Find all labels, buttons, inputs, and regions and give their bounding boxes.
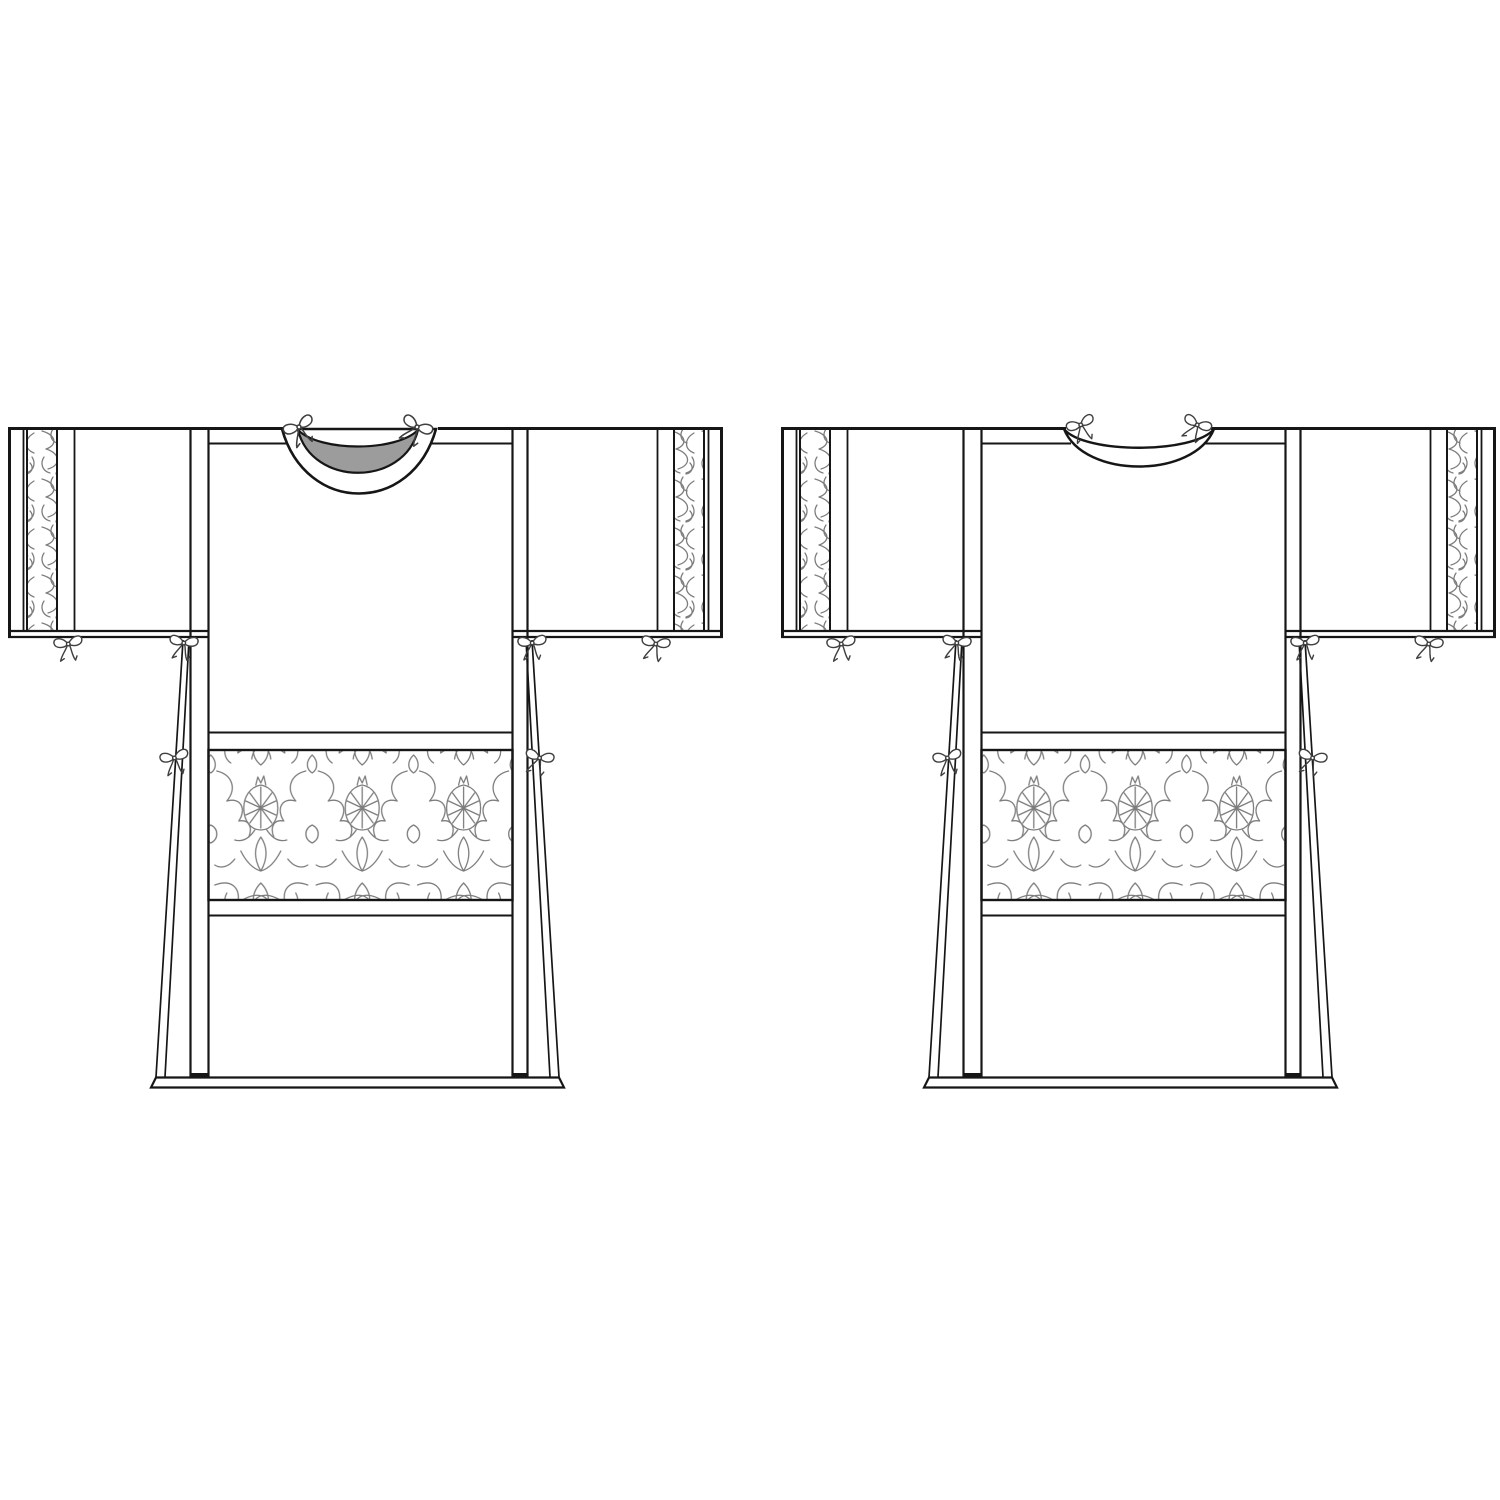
tunic-front-body <box>8 427 723 1088</box>
drawing-canvas: Tunic pattern illustration, front and ba… <box>0 0 1500 1500</box>
tunic-back-body <box>781 427 1496 1088</box>
tunic-diagram-svg <box>0 0 1500 1500</box>
front-neckline <box>282 414 436 494</box>
back-neckline <box>1057 413 1214 466</box>
tunic-back <box>781 413 1496 1087</box>
tunic-front <box>8 414 723 1088</box>
back-neckband-arc <box>1064 429 1214 467</box>
